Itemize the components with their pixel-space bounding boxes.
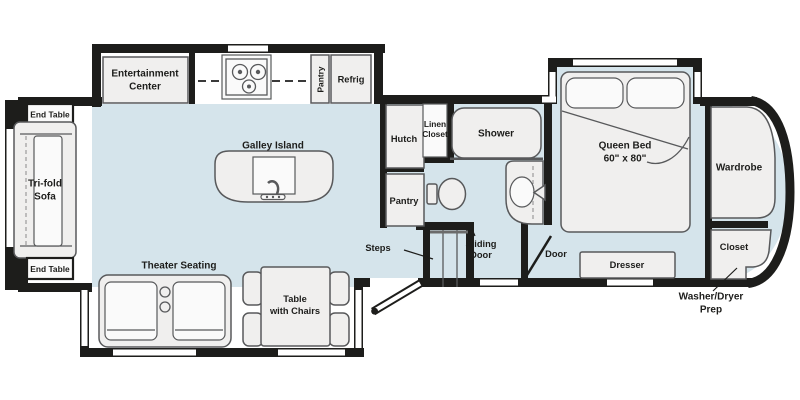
hall-window	[542, 97, 556, 103]
pillow	[566, 78, 623, 108]
closet-label: Closet	[720, 242, 748, 252]
bath-bedroom-wall	[544, 101, 552, 225]
bottom-slideout-window-right	[356, 290, 362, 348]
hutch-label: Hutch	[391, 134, 418, 144]
tri-fold-sofa-label2: Sofa	[34, 192, 56, 203]
closet	[711, 230, 771, 279]
entertainment-center-label2: Center	[129, 82, 161, 93]
vanity-sink	[506, 161, 545, 224]
table-label: Table	[283, 294, 307, 304]
pantry-kitchen-label: Pantry	[316, 66, 326, 92]
rear-window	[7, 129, 14, 247]
galley-island	[215, 151, 333, 202]
table-label2: with Chairs	[269, 306, 320, 316]
wardrobe-label: Wardrobe	[716, 163, 763, 174]
linen-closet-label2: Closet	[422, 129, 448, 139]
steps-label: Steps	[365, 243, 390, 253]
bed-slideout-window-left	[550, 72, 556, 97]
queen-bed-label2: 60" x 80"	[604, 154, 647, 165]
queen-bed	[561, 72, 690, 232]
floorplan-canvas: End Table End Table Tri-fold Sofa Entert…	[0, 0, 800, 400]
bottom-slideout-window-left	[82, 290, 88, 346]
theater-window	[113, 350, 196, 356]
bedroom-window	[607, 280, 653, 286]
tri-fold-sofa	[14, 122, 76, 258]
shower-label: Shower	[478, 129, 514, 140]
theater-seating	[99, 275, 231, 347]
end-table-top-label: End Table	[30, 110, 70, 120]
washer-dryer-prep-label2: Prep	[700, 305, 722, 316]
door-label: Door	[545, 249, 567, 259]
dresser-label: Dresser	[610, 260, 645, 270]
linen-closet-label: Linen	[424, 119, 446, 129]
cooktop-icon	[222, 55, 271, 99]
dinette-window	[278, 350, 345, 356]
kitchen-window	[228, 46, 268, 52]
sliding-door	[430, 231, 468, 234]
refrig-label: Refrig	[338, 75, 365, 85]
sliding-door-label: Sliding	[466, 239, 497, 249]
sliding-door-label2: Door	[470, 250, 492, 260]
tri-fold-sofa-label: Tri-fold	[28, 179, 62, 190]
kitchen-divider-wall	[189, 50, 195, 104]
galley-island-label: Galley Island	[242, 141, 304, 152]
bed-slideout-window-right	[695, 72, 701, 97]
pantry-hall-label: Pantry	[390, 196, 420, 206]
entertainment-center-label: Entertainment	[111, 69, 179, 80]
entertainment-center	[103, 57, 188, 103]
end-table-bottom-label: End Table	[30, 264, 70, 274]
pillow	[627, 78, 684, 108]
rv-floorplan: End Table End Table Tri-fold Sofa Entert…	[0, 0, 800, 400]
washer-dryer-prep-label: Washer/Dryer	[679, 292, 744, 303]
bed-slideout-window	[573, 60, 677, 66]
theater-seating-label: Theater Seating	[141, 261, 216, 272]
hall-window-bottom	[480, 280, 518, 286]
queen-bed-label: Queen Bed	[599, 141, 652, 152]
